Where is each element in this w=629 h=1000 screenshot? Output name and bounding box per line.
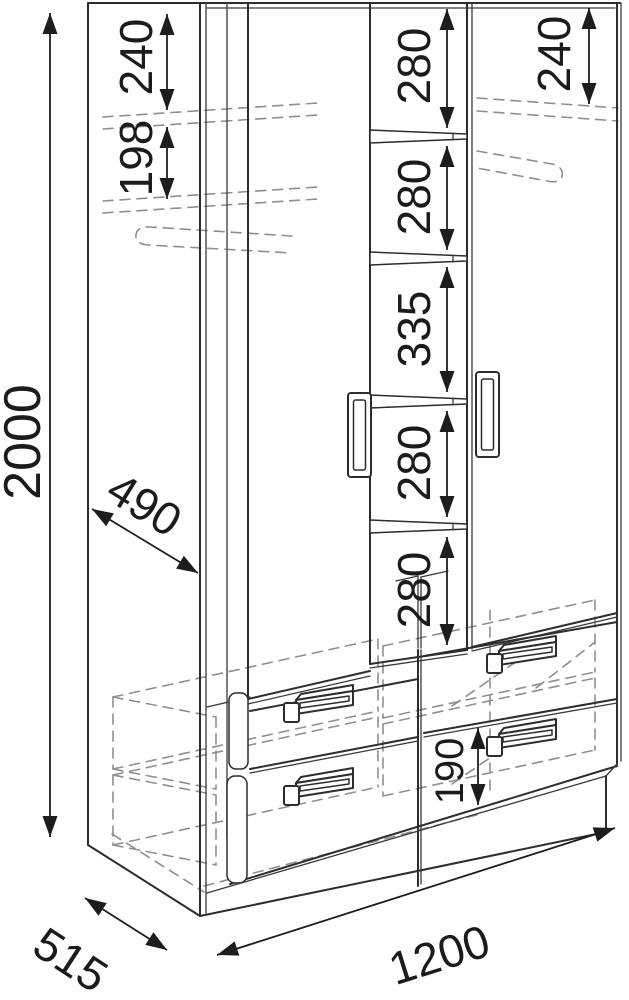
dim-overall-width: 1200 (215, 821, 618, 995)
shelf (370, 520, 467, 533)
dim-left-top-gap: 240 (110, 14, 175, 110)
dim-label-280-1: 280 (388, 28, 440, 105)
dim-overall-height: 2000 (0, 13, 58, 837)
drawer-front-edge (229, 693, 248, 769)
arrowhead (440, 267, 455, 288)
dim-left-shelf-to-rod: 198 (110, 120, 175, 199)
dim-label-190: 190 (428, 738, 472, 805)
dim-center-gap-5: 280 (388, 537, 455, 645)
dim-drawer-height: 190 (428, 728, 486, 805)
arrowhead (440, 411, 455, 432)
diagram-canvas: 2000 240 198 240 280 (0, 0, 629, 1000)
drawer-handle (284, 685, 353, 722)
drawer-unit (200, 622, 617, 916)
dim-label-240-left: 240 (110, 19, 162, 96)
left-hanging-rod (136, 227, 292, 253)
arrowhead (440, 146, 455, 167)
arrowhead (440, 496, 455, 517)
dim-label-515: 515 (24, 917, 117, 1000)
arrowhead (43, 816, 58, 837)
arrowhead (440, 9, 455, 30)
arrowhead (440, 624, 455, 645)
dim-center-gap-2: 280 (388, 146, 455, 250)
wardrobe-dimension-diagram: 2000 240 198 240 280 (0, 0, 629, 1000)
dim-right-top-gap: 240 (528, 8, 597, 104)
dim-label-280-2: 280 (388, 159, 440, 236)
dim-center-gap-3: 335 (388, 267, 455, 392)
arrowhead (440, 371, 455, 392)
arrowhead (176, 556, 202, 580)
dim-label-280-4: 280 (388, 552, 440, 629)
arrowhead (43, 13, 58, 34)
left-door-handle (348, 393, 371, 477)
dimension-annotations: 2000 240 198 240 280 (0, 8, 617, 1000)
arrowhead (440, 107, 455, 128)
dim-label-490: 490 (98, 462, 191, 547)
arrowhead (81, 892, 107, 916)
dim-label-240-right: 240 (528, 16, 580, 93)
arrowhead (471, 728, 486, 749)
right-door-handle (476, 372, 499, 457)
arrowhead (471, 784, 486, 805)
dim-label-280-3: 280 (388, 425, 440, 502)
arrowhead (215, 941, 240, 962)
arrowhead (145, 932, 171, 956)
right-hanging-rod (477, 151, 562, 182)
dim-overall-depth: 515 (24, 892, 171, 1000)
dim-inner-depth: 490 (88, 462, 202, 579)
dim-center-gap-1: 280 (388, 9, 455, 128)
shelf (370, 130, 467, 143)
drawer-front-edge (227, 776, 247, 883)
dim-label-335: 335 (388, 291, 440, 368)
arrowhead (582, 83, 597, 104)
arrowhead (440, 537, 455, 558)
arrowhead (582, 8, 597, 29)
shelf (370, 395, 467, 408)
dim-center-gap-4: 280 (388, 411, 455, 517)
shelf (370, 252, 467, 265)
arrowhead (440, 229, 455, 250)
dim-label-1200: 1200 (383, 915, 496, 995)
dim-label-height: 2000 (0, 384, 52, 500)
dim-label-198: 198 (110, 120, 162, 197)
